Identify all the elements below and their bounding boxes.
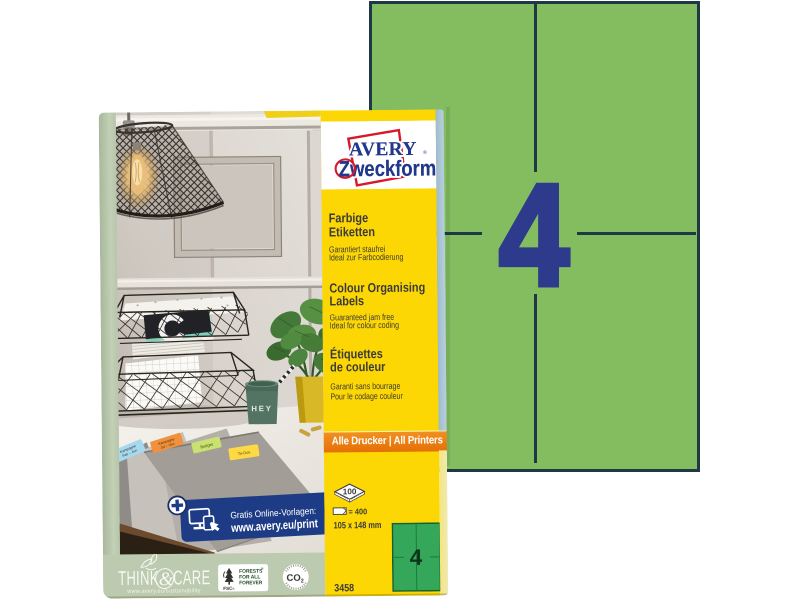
svg-text:Zweckform: Zweckform — [339, 157, 437, 182]
svg-text:CARE: CARE — [173, 566, 211, 589]
svg-text:FOREVER: FOREVER — [239, 580, 263, 586]
svg-text:= 400: = 400 — [348, 506, 367, 516]
svg-text:4: 4 — [410, 544, 423, 569]
svg-text:100: 100 — [343, 487, 357, 496]
svg-text:HEY: HEY — [251, 404, 273, 413]
svg-text:2: 2 — [301, 579, 304, 585]
svg-text:Z: Z — [339, 158, 351, 182]
svg-text:CO: CO — [286, 573, 300, 584]
svg-text:THINK: THINK — [118, 567, 159, 590]
svg-text:www.avery.eu/sustainability: www.avery.eu/sustainability — [126, 588, 200, 595]
svg-text:®: ® — [423, 149, 427, 156]
